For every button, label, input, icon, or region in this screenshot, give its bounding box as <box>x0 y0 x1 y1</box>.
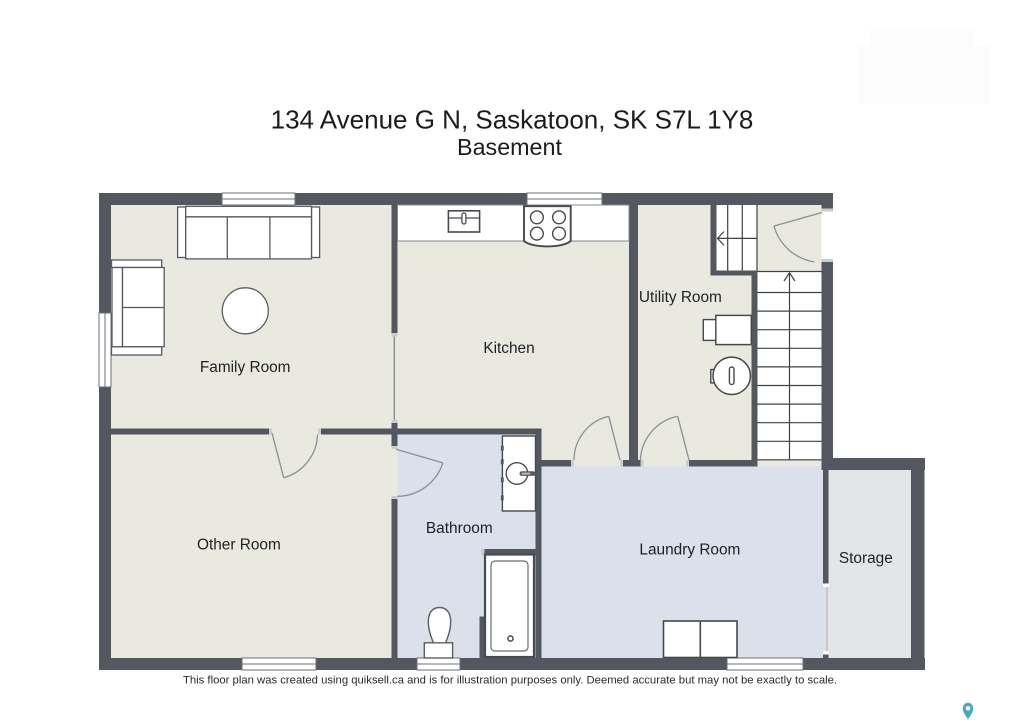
svg-text:Other Room: Other Room <box>197 536 281 553</box>
svg-text:Family Room: Family Room <box>200 359 291 376</box>
svg-text:This floor plan was created us: This floor plan was created using quikse… <box>183 675 837 687</box>
svg-text:Laundry Room: Laundry Room <box>639 542 740 559</box>
svg-text:Bathroom: Bathroom <box>426 520 493 537</box>
svg-text:Storage: Storage <box>839 550 893 567</box>
svg-text:134 Avenue G N, Saskatoon, SK: 134 Avenue G N, Saskatoon, SK S7L 1Y8 <box>271 104 754 134</box>
svg-text:Kitchen: Kitchen <box>483 340 534 357</box>
svg-text:Basement: Basement <box>457 134 562 160</box>
svg-text:Utility Room: Utility Room <box>639 289 722 306</box>
